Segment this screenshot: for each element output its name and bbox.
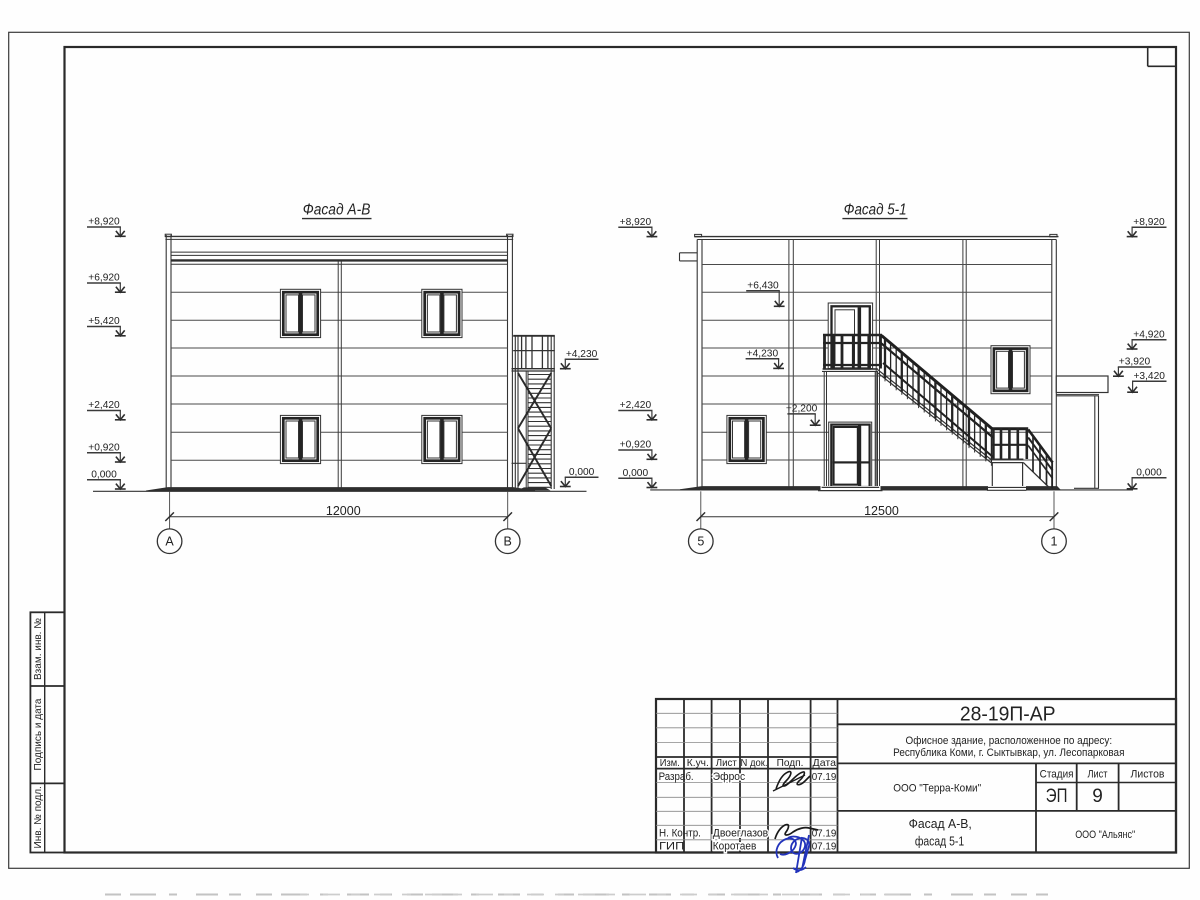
svg-text:12000: 12000 — [326, 504, 361, 518]
svg-text:28-19П-АР: 28-19П-АР — [960, 703, 1056, 725]
svg-text:Офисное здание, расположенное: Офисное здание, расположенное по адресу: — [906, 735, 1113, 747]
svg-text:+8,920: +8,920 — [620, 217, 652, 228]
svg-text:Двоеглазов: Двоеглазов — [713, 828, 769, 840]
svg-text:В: В — [504, 535, 512, 549]
svg-text:5: 5 — [697, 535, 704, 549]
svg-text:Листов: Листов — [1131, 769, 1165, 781]
svg-text:+2,420: +2,420 — [88, 400, 120, 411]
svg-text:К.уч.: К.уч. — [687, 757, 709, 769]
svg-text:+0,920: +0,920 — [88, 442, 120, 453]
svg-text:ООО "Терра-Коми": ООО "Терра-Коми" — [893, 783, 981, 795]
svg-text:+4,230: +4,230 — [747, 348, 779, 359]
svg-text:Эфрос: Эфрос — [713, 771, 746, 783]
svg-text:+6,920: +6,920 — [88, 273, 120, 284]
svg-text:12500: 12500 — [864, 504, 899, 518]
svg-text:+8,920: +8,920 — [1133, 217, 1165, 228]
svg-text:Взам. инв. №: Взам. инв. № — [33, 618, 44, 680]
svg-text:Лист: Лист — [716, 757, 737, 769]
svg-text:N док.: N док. — [741, 757, 768, 769]
svg-text:ЭП: ЭП — [1046, 785, 1068, 807]
svg-text:А: А — [165, 535, 174, 549]
svg-text:+6,430: +6,430 — [747, 280, 779, 291]
svg-text:Лист: Лист — [1088, 769, 1108, 781]
svg-text:07.19: 07.19 — [812, 841, 837, 853]
svg-text:Стадия: Стадия — [1040, 769, 1074, 781]
svg-text:+3,920: +3,920 — [1119, 357, 1151, 368]
svg-text:Республика Коми, г. Сыктывкар,: Республика Коми, г. Сыктывкар, ул. Лесоп… — [893, 747, 1124, 759]
svg-text:Инв. № подл.: Инв. № подл. — [33, 786, 44, 848]
svg-text:+4,920: +4,920 — [1133, 329, 1165, 340]
svg-text:+4,230: +4,230 — [566, 349, 598, 360]
svg-text:Фасад 5-1: Фасад 5-1 — [844, 202, 907, 219]
svg-text:фасад 5-1: фасад 5-1 — [915, 834, 964, 849]
svg-text:Фасад А-В,: Фасад А-В, — [909, 816, 972, 831]
svg-text:07.19: 07.19 — [812, 771, 837, 783]
svg-text:0,000: 0,000 — [91, 469, 117, 480]
svg-text:Н. Контр.: Н. Контр. — [659, 828, 701, 840]
svg-text:0,000: 0,000 — [623, 468, 649, 479]
svg-text:Изм.: Изм. — [660, 757, 680, 769]
svg-text:+0,920: +0,920 — [620, 440, 652, 451]
svg-text:+2,420: +2,420 — [620, 400, 652, 411]
svg-text:Фасад А-В: Фасад А-В — [303, 202, 371, 219]
svg-text:+2,200: +2,200 — [786, 404, 818, 415]
svg-text:+5,420: +5,420 — [88, 316, 120, 327]
svg-text:ООО "Альянс": ООО "Альянс" — [1075, 829, 1135, 841]
svg-text:Подп.: Подп. — [777, 757, 804, 769]
svg-text:0,000: 0,000 — [1136, 467, 1162, 478]
svg-text:1: 1 — [1051, 535, 1058, 549]
svg-text:9: 9 — [1092, 786, 1103, 807]
svg-text:Подпись и дата: Подпись и дата — [33, 698, 44, 770]
svg-text:+3,420: +3,420 — [1133, 371, 1165, 382]
svg-text:+8,920: +8,920 — [88, 217, 120, 228]
svg-text:0,000: 0,000 — [569, 467, 595, 478]
svg-text:Разраб.: Разраб. — [659, 771, 694, 783]
svg-text:Дата: Дата — [813, 757, 837, 769]
svg-text:Коротаев: Коротаев — [713, 840, 757, 852]
svg-text:ГИП: ГИП — [659, 840, 684, 852]
